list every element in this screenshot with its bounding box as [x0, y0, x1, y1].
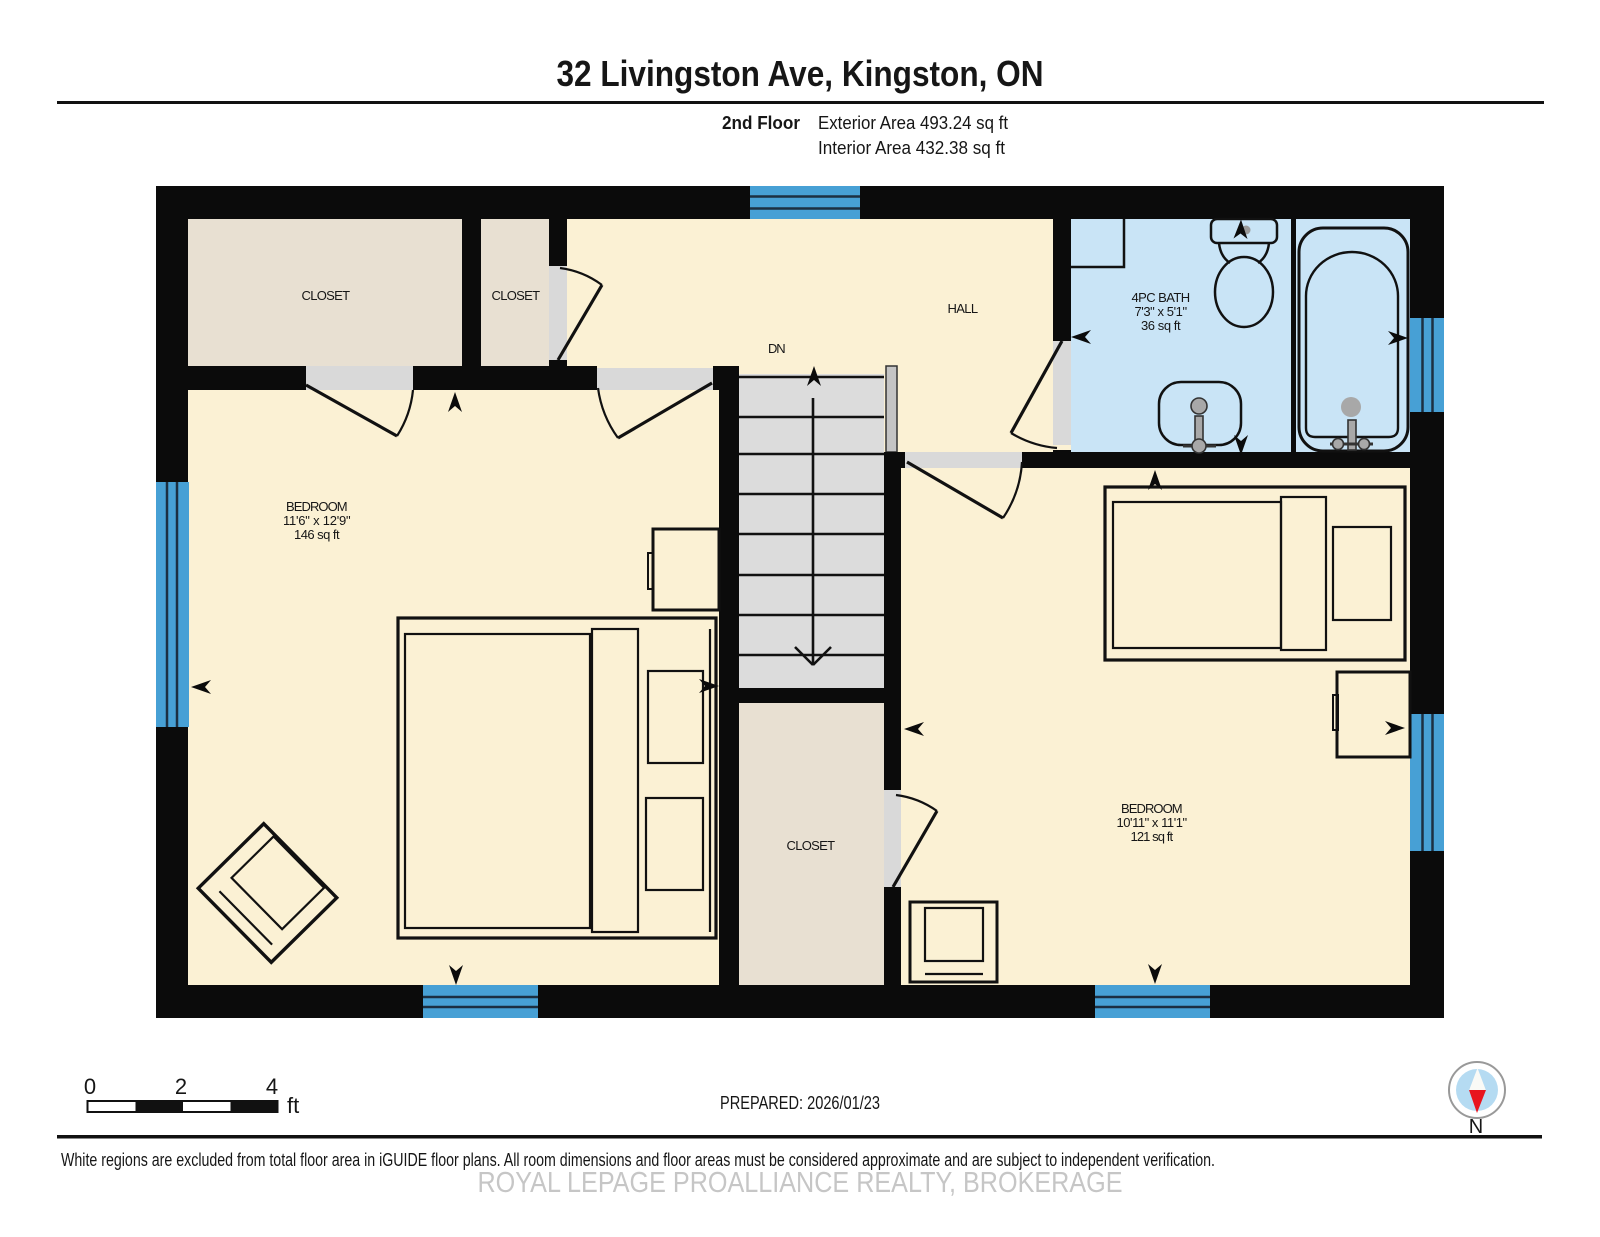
- svg-text:HALL: HALL: [948, 301, 979, 316]
- svg-text:BEDROOM: BEDROOM: [286, 499, 348, 514]
- svg-text:7'3" x 5'1": 7'3" x 5'1": [1135, 304, 1188, 319]
- svg-text:146 sq ft: 146 sq ft: [294, 527, 340, 542]
- svg-text:N: N: [1469, 1116, 1483, 1138]
- svg-text:0: 0: [84, 1074, 96, 1099]
- svg-text:2: 2: [175, 1074, 187, 1099]
- svg-text:ROYAL LEPAGE PROALLIANCE REALT: ROYAL LEPAGE PROALLIANCE REALTY, BROKERA…: [478, 1167, 1123, 1199]
- svg-text:PREPARED: 2026/01/23: PREPARED: 2026/01/23: [720, 1093, 880, 1113]
- svg-text:4PC BATH: 4PC BATH: [1132, 290, 1191, 305]
- svg-text:DN: DN: [768, 341, 786, 356]
- svg-text:CLOSET: CLOSET: [787, 838, 836, 853]
- svg-text:4: 4: [266, 1074, 278, 1099]
- svg-text:32 Livingston Ave, Kingston, O: 32 Livingston Ave, Kingston, ON: [557, 53, 1044, 94]
- svg-text:11'6" x 12'9": 11'6" x 12'9": [283, 513, 351, 528]
- svg-text:2nd Floor: 2nd Floor: [722, 113, 800, 133]
- svg-text:10'11" x 11'1": 10'11" x 11'1": [1117, 815, 1188, 830]
- svg-text:ft: ft: [287, 1093, 299, 1118]
- svg-text:36 sq ft: 36 sq ft: [1141, 318, 1181, 333]
- svg-text:Interior Area 432.38 sq ft: Interior Area 432.38 sq ft: [818, 138, 1005, 158]
- svg-text:CLOSET: CLOSET: [302, 288, 351, 303]
- svg-text:CLOSET: CLOSET: [492, 288, 541, 303]
- svg-text:BEDROOM: BEDROOM: [1121, 801, 1183, 816]
- svg-text:Exterior Area 493.24 sq ft: Exterior Area 493.24 sq ft: [818, 113, 1008, 133]
- svg-text:121 sq ft: 121 sq ft: [1131, 829, 1174, 844]
